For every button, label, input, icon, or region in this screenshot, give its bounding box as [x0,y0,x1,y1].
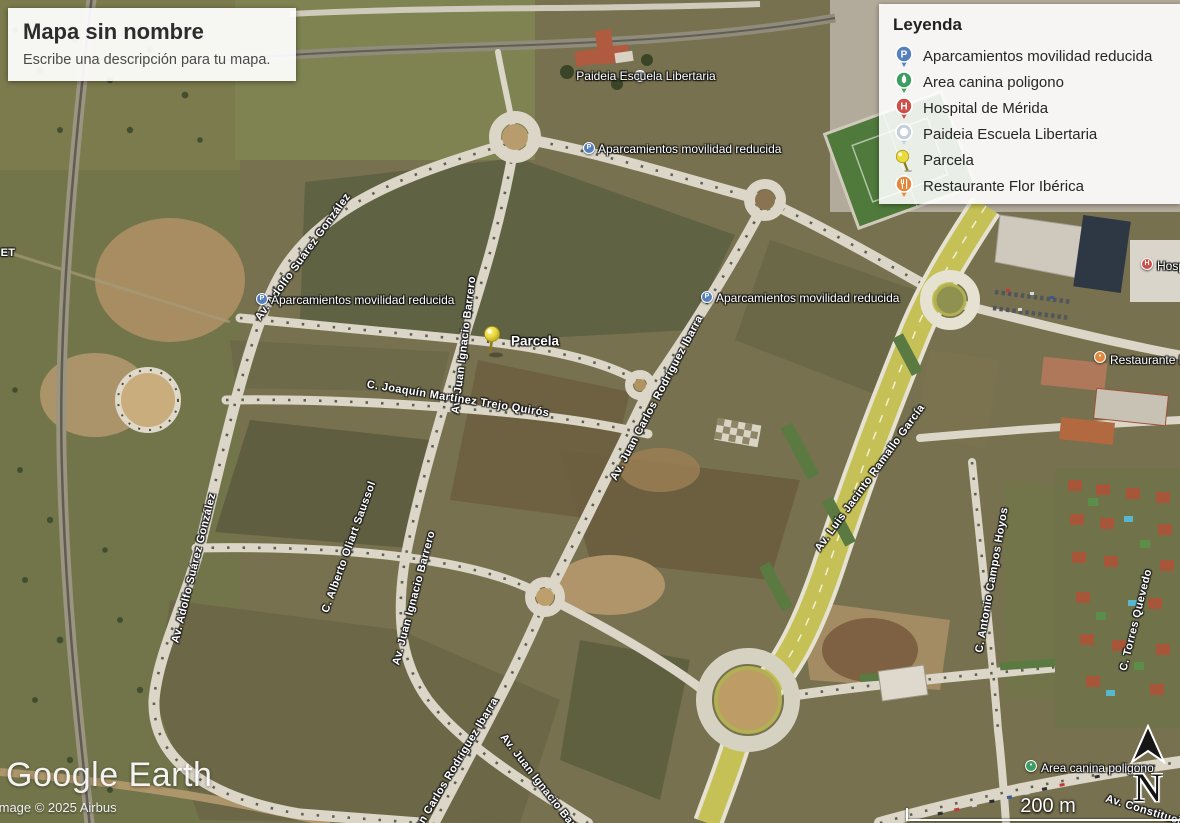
legend-item-label: Paideia Escuela Libertaria [923,126,1097,143]
school-marker-icon [893,122,915,146]
map-title[interactable]: Mapa sin nombre [23,19,281,45]
legend-item-label: Area canina poligono [923,74,1064,91]
google-earth-logo: Google Earth [6,756,212,795]
legend-item-parcela[interactable]: Parcela [893,147,1170,173]
svg-text:P: P [901,50,908,61]
compass[interactable]: N [1120,724,1176,808]
map-description-placeholder[interactable]: Escribe una descripción para tu mapa. [23,52,281,68]
parking-marker-icon: P [893,44,915,68]
map-title-card: Mapa sin nombre Escribe una descripción … [8,8,296,81]
legend-panel: Leyenda P Aparcamientos movilidad reduci… [879,4,1180,204]
legend-heading: Leyenda [893,15,1170,35]
svg-text:H: H [900,102,907,113]
legend-item-restaurant[interactable]: Restaurante Flor Ibérica [893,173,1170,199]
legend-item-label: Aparcamientos movilidad reducida [923,48,1152,65]
legend-item-dog-park[interactable]: Area canina poligono [893,69,1170,95]
scale-bar-label: 200 m [1008,795,1088,818]
scale-bar-tick [906,808,908,821]
legend-item-label: Parcela [923,152,974,169]
legend-item-label: Restaurante Flor Ibérica [923,178,1084,195]
legend-item-parking[interactable]: P Aparcamientos movilidad reducida [893,43,1170,69]
restaurant-marker-icon [893,174,915,198]
google-earth-map-view: Av. Adolfo Suárez GonzálezAv. Adolfo Suá… [0,0,1180,823]
legend-item-label: Hospital de Mérida [923,100,1048,117]
scale-bar-line [906,819,1180,821]
north-letter: N [1120,769,1176,807]
dog-park-marker-icon [893,70,915,94]
imagery-copyright: Image © 2025 Airbus [0,800,117,815]
north-arrow-icon [1120,724,1176,764]
legend-item-hospital[interactable]: H Hospital de Mérida [893,95,1170,121]
hospital-marker-icon: H [893,96,915,120]
legend-item-school[interactable]: Paideia Escuela Libertaria [893,121,1170,147]
pushpin-icon [893,148,915,172]
